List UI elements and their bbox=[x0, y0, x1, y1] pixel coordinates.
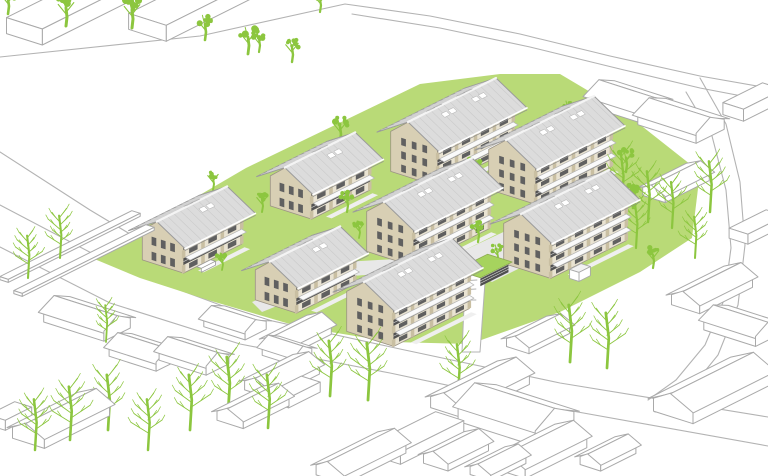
gable-window bbox=[401, 151, 406, 160]
tree-twig bbox=[13, 243, 15, 247]
tree-twig bbox=[596, 308, 600, 314]
tree-twig bbox=[700, 207, 702, 211]
gable-window bbox=[388, 221, 393, 230]
tree-twig bbox=[97, 370, 101, 376]
tree-twig bbox=[94, 378, 97, 383]
gable-window bbox=[289, 201, 294, 211]
tree-twig bbox=[24, 393, 27, 398]
tree-twig bbox=[212, 380, 215, 386]
tree-foliage bbox=[242, 30, 249, 37]
tree-twig bbox=[140, 397, 144, 403]
tree-twig bbox=[122, 393, 125, 398]
tree-foliage bbox=[286, 41, 290, 45]
gable-window bbox=[265, 277, 270, 287]
tree-twig bbox=[110, 297, 112, 301]
tree-twig bbox=[61, 384, 65, 390]
context-building bbox=[723, 83, 768, 121]
gable-window bbox=[412, 141, 417, 150]
gable-window bbox=[298, 204, 303, 214]
tree-twig bbox=[582, 312, 585, 318]
tree-foliage bbox=[261, 33, 265, 37]
tree-foliage bbox=[215, 253, 219, 257]
tree-skeleton bbox=[590, 299, 629, 368]
gable-window bbox=[378, 318, 383, 327]
tree-twig bbox=[727, 175, 730, 180]
tree-solid bbox=[0, 0, 18, 14]
tree-foliage bbox=[491, 244, 495, 248]
tree-foliage bbox=[342, 116, 346, 120]
gable-window bbox=[170, 258, 175, 268]
gable-window bbox=[520, 189, 525, 198]
tree-twig bbox=[154, 389, 157, 394]
gable-window bbox=[401, 165, 406, 174]
gable-window bbox=[274, 280, 279, 290]
tree-twig bbox=[723, 167, 726, 172]
site-plan-stage bbox=[0, 0, 768, 476]
tree-twig bbox=[696, 152, 699, 157]
tree-foliage bbox=[206, 18, 211, 23]
gable-window bbox=[170, 243, 175, 253]
tree-twig bbox=[232, 359, 236, 365]
gable-window bbox=[283, 298, 288, 308]
gable-window bbox=[280, 183, 285, 193]
gable-window bbox=[412, 168, 417, 177]
tree-twig bbox=[318, 344, 321, 349]
tree-foliage bbox=[359, 222, 363, 226]
tree-twig bbox=[574, 307, 578, 313]
tree-twig bbox=[33, 227, 35, 231]
context-building bbox=[154, 337, 235, 376]
gable-window bbox=[398, 225, 403, 234]
gable-window bbox=[525, 233, 530, 242]
tree-foliage bbox=[251, 34, 256, 39]
tree-foliage bbox=[354, 223, 358, 227]
tree-foliage bbox=[12, 0, 17, 1]
gable-window bbox=[152, 237, 157, 247]
tree-twig bbox=[117, 359, 120, 364]
tree-twig bbox=[241, 364, 244, 370]
gable-window bbox=[283, 283, 288, 293]
tree-twig bbox=[615, 299, 618, 304]
gable-window bbox=[368, 301, 373, 310]
gable-window bbox=[535, 263, 540, 272]
tree-twig bbox=[77, 373, 80, 378]
tree-foliage bbox=[621, 147, 627, 153]
tree-twig bbox=[717, 149, 720, 154]
gable-window bbox=[401, 138, 406, 147]
gable-window bbox=[422, 158, 427, 167]
tree-twig bbox=[73, 378, 77, 384]
tree-foliage bbox=[133, 3, 138, 8]
gable-window bbox=[388, 248, 393, 257]
tree-twig bbox=[384, 360, 387, 366]
tree-twig bbox=[112, 365, 116, 371]
tree-twig bbox=[17, 228, 19, 232]
tree-foliage bbox=[260, 193, 265, 198]
tree-twig bbox=[176, 377, 179, 382]
gable-window bbox=[510, 186, 515, 195]
tree-twig bbox=[68, 222, 70, 226]
tree-twig bbox=[131, 409, 134, 414]
site-plan-illustration bbox=[0, 0, 768, 476]
tree-foliage bbox=[253, 26, 259, 32]
gable-window bbox=[377, 218, 382, 227]
gable-window bbox=[289, 186, 294, 196]
gable-window bbox=[499, 169, 504, 178]
tree-foliage bbox=[220, 253, 223, 256]
gable-window bbox=[514, 257, 519, 266]
tree-twig bbox=[96, 299, 98, 303]
tree-twig bbox=[625, 328, 628, 333]
tree-twig bbox=[59, 380, 62, 385]
tree-solid bbox=[251, 29, 265, 52]
gable-window bbox=[378, 305, 383, 314]
tree-foliage bbox=[339, 195, 344, 200]
tree-twig bbox=[46, 215, 48, 219]
tree-twig bbox=[120, 382, 123, 387]
tree-twig bbox=[211, 389, 214, 394]
tree-foliage bbox=[656, 248, 659, 251]
tree-twig bbox=[253, 364, 256, 369]
tree-twig bbox=[51, 395, 54, 400]
tree-twig bbox=[383, 348, 386, 354]
tree-twig bbox=[351, 343, 354, 349]
tree-foliage bbox=[476, 220, 480, 224]
tree-twig bbox=[50, 226, 52, 230]
gable-window bbox=[510, 159, 515, 168]
road bbox=[0, 4, 768, 88]
tree-twig bbox=[52, 212, 55, 217]
tree-foliage bbox=[491, 249, 495, 253]
tree-foliage bbox=[218, 257, 222, 261]
tree-foliage bbox=[349, 195, 354, 200]
gable-window bbox=[422, 145, 427, 154]
tree-foliage bbox=[479, 225, 484, 230]
tree-foliage bbox=[197, 20, 203, 26]
tree-twig bbox=[128, 417, 131, 422]
gable-window bbox=[298, 189, 303, 199]
tree-twig bbox=[15, 236, 17, 240]
tree-twig bbox=[159, 395, 162, 400]
tree-foliage bbox=[238, 33, 243, 38]
gable-window bbox=[514, 230, 519, 239]
tree-twig bbox=[36, 242, 38, 246]
gable-window bbox=[280, 198, 285, 208]
tree-twig bbox=[705, 212, 707, 216]
gable-window bbox=[265, 292, 270, 302]
gable-window bbox=[378, 331, 383, 340]
tree-twig bbox=[594, 316, 597, 321]
gable-window bbox=[388, 235, 393, 244]
tree-foliage bbox=[343, 195, 346, 198]
tree-foliage bbox=[647, 245, 652, 250]
tree-foliage bbox=[296, 45, 301, 50]
tree-foliage bbox=[500, 245, 503, 248]
tree-foliage bbox=[470, 224, 475, 229]
tree-foliage bbox=[650, 252, 654, 256]
gable-window bbox=[161, 255, 166, 265]
gable-window bbox=[412, 155, 417, 164]
tree-twig bbox=[174, 398, 177, 403]
gable-window bbox=[525, 247, 530, 256]
tree-foliage bbox=[209, 174, 214, 179]
gable-window bbox=[377, 231, 382, 240]
gable-window bbox=[368, 315, 373, 324]
tree-twig bbox=[70, 211, 72, 215]
tree-twig bbox=[204, 380, 207, 385]
tree-twig bbox=[473, 360, 476, 365]
tree-foliage bbox=[214, 175, 218, 179]
gable-window bbox=[161, 240, 166, 250]
tree-twig bbox=[445, 347, 448, 352]
tree-twig bbox=[49, 208, 51, 212]
tree-twig bbox=[34, 235, 36, 239]
tree-twig bbox=[70, 230, 72, 234]
tree-foliage bbox=[340, 191, 344, 195]
tree-twig bbox=[172, 385, 175, 390]
tree-foliage bbox=[294, 38, 298, 42]
tree-twig bbox=[56, 388, 59, 393]
tree-twig bbox=[137, 393, 140, 398]
tree-twig bbox=[63, 208, 66, 213]
gable-window bbox=[510, 173, 515, 182]
context-building bbox=[7, 0, 144, 45]
tree-twig bbox=[232, 348, 236, 354]
tree-twig bbox=[340, 337, 343, 342]
tree-twig bbox=[178, 367, 181, 372]
gable-window bbox=[357, 298, 362, 307]
tree-twig bbox=[705, 230, 707, 234]
tree-twig bbox=[590, 335, 593, 340]
tree-foliage bbox=[335, 116, 339, 120]
gable-window bbox=[368, 328, 373, 337]
tree-twig bbox=[610, 304, 614, 310]
tree-twig bbox=[705, 221, 707, 225]
gable-window bbox=[377, 245, 382, 254]
context-building bbox=[729, 210, 768, 244]
tree-twig bbox=[340, 349, 343, 354]
tree-twig bbox=[236, 355, 239, 361]
tree-foliage bbox=[338, 122, 342, 126]
tree-twig bbox=[116, 373, 119, 378]
tree-branch bbox=[320, 0, 326, 2]
context-building bbox=[311, 428, 412, 476]
tree-twig bbox=[82, 382, 85, 387]
gable-window bbox=[152, 252, 157, 262]
gable-window bbox=[357, 325, 362, 334]
tree-twig bbox=[713, 153, 717, 159]
tree-twig bbox=[579, 303, 582, 309]
tree-twig bbox=[158, 407, 161, 412]
tree-skeleton bbox=[128, 389, 165, 450]
gable-window bbox=[520, 163, 525, 172]
context-building bbox=[648, 352, 768, 423]
tree-twig bbox=[611, 315, 615, 321]
gable-window bbox=[525, 260, 530, 269]
gable-window bbox=[514, 243, 519, 252]
tree-twig bbox=[27, 397, 31, 403]
tree-twig bbox=[41, 388, 44, 393]
tree-twig bbox=[20, 232, 23, 237]
tree-twig bbox=[67, 204, 69, 208]
tree-foliage bbox=[343, 120, 349, 126]
tree-twig bbox=[615, 311, 618, 316]
gable-window bbox=[357, 311, 362, 320]
tree-solid bbox=[286, 38, 301, 62]
tree-twig bbox=[93, 364, 96, 369]
tree-foliage bbox=[209, 171, 212, 174]
tree-twig bbox=[720, 158, 723, 163]
tree-foliage bbox=[257, 193, 260, 196]
gable-window bbox=[535, 237, 540, 246]
tree-twig bbox=[348, 352, 351, 358]
tree-twig bbox=[45, 396, 48, 401]
tree-twig bbox=[112, 377, 116, 383]
tree-foliage bbox=[630, 148, 634, 152]
tree-twig bbox=[42, 247, 44, 251]
tree-foliage bbox=[261, 197, 266, 202]
tree-twig bbox=[181, 372, 185, 378]
tree-twig bbox=[45, 231, 47, 235]
tree-twig bbox=[162, 415, 165, 420]
context-building bbox=[698, 305, 768, 347]
gable-window bbox=[398, 238, 403, 247]
tree-foliage bbox=[495, 248, 498, 251]
gable-window bbox=[274, 295, 279, 305]
gable-window bbox=[520, 176, 525, 185]
tree-twig bbox=[619, 320, 622, 325]
tree-twig bbox=[440, 363, 443, 368]
tree-twig bbox=[133, 400, 136, 405]
gable-window bbox=[499, 156, 504, 165]
tree-foliage bbox=[345, 190, 350, 195]
tree-twig bbox=[592, 302, 595, 307]
tree-twig bbox=[590, 324, 593, 329]
gable-window bbox=[535, 250, 540, 259]
